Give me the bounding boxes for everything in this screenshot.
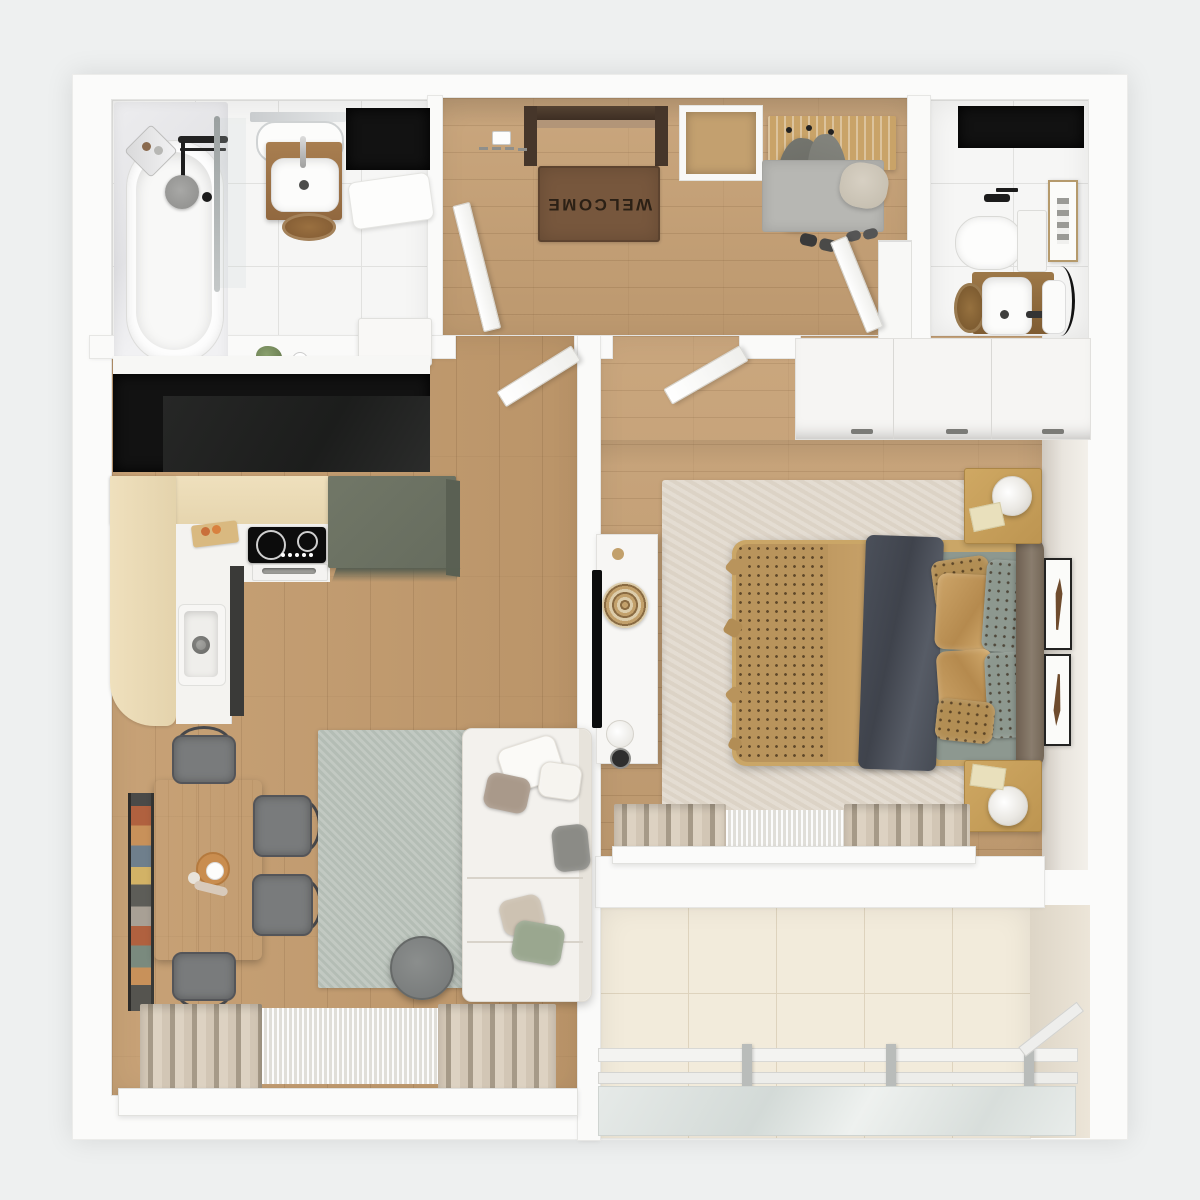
balcony-glass (598, 1086, 1076, 1136)
green-cabinet-bottom-shade (332, 568, 461, 582)
console-vase (606, 720, 634, 748)
cooktop-controls (281, 553, 285, 557)
coat-hooks (786, 127, 792, 133)
pillow-tan-dotted-bottom (934, 697, 996, 745)
cabinet-dark-strip (230, 566, 244, 716)
counter-left-bar (110, 476, 176, 726)
bedroom-shadow-overlay (598, 440, 1042, 466)
feather-icon (1052, 578, 1064, 630)
tub-drain (202, 192, 212, 202)
green-cabinet (328, 476, 456, 568)
chair-seat (252, 874, 313, 936)
wardrobe-handle-1 (851, 429, 873, 434)
oven-handle (262, 568, 316, 574)
console-knob (612, 548, 624, 560)
welcome-mat-text: WELCOME (538, 166, 660, 242)
chair-seat (253, 795, 312, 857)
console-candle (610, 748, 631, 769)
chair-seat (172, 952, 236, 1001)
wc-wall-art-sketch (1057, 198, 1069, 244)
wardrobe-handle-3 (1042, 429, 1064, 434)
glass-screen-pane (220, 118, 246, 288)
table-lamp-bottom (988, 786, 1028, 826)
wardrobe-handle-2 (946, 429, 968, 434)
bath-faucet-dot (299, 180, 309, 190)
wc-toilet-tank (1017, 210, 1047, 272)
tv (592, 570, 602, 728)
bedroom-curtain-right (844, 804, 970, 852)
bedroom-sheer-curtain (726, 810, 844, 848)
key-holder (492, 131, 511, 145)
living-sheer-curtain (262, 1008, 438, 1084)
shower-head (165, 175, 199, 209)
book-ledge (128, 793, 153, 1011)
dining-chair-bottom (172, 952, 236, 1010)
wc-wall-art (1048, 180, 1078, 262)
bread-slices (201, 527, 210, 536)
entry-door-lintel (524, 106, 668, 121)
entry-tall-cabinet (878, 240, 912, 340)
wc-black-niche (958, 106, 1084, 148)
cooktop-burner-small (297, 531, 318, 552)
living-window-sill (118, 1088, 578, 1116)
nightstand-bottom-papers (970, 764, 1007, 791)
entry-door-post-right (655, 106, 668, 166)
dining-chair-right-lower (252, 874, 322, 936)
sofa-pillow-white-2 (537, 760, 584, 801)
wardrobe-seam-2 (991, 339, 992, 439)
corner-sofa (462, 728, 592, 1002)
wc-basin (982, 277, 1032, 335)
wc-mirror-reflection (1042, 280, 1066, 334)
coffee-table (390, 936, 454, 1000)
decor-tray (602, 582, 648, 628)
headboard (1016, 538, 1044, 768)
kitchen-dark-counter (163, 396, 430, 472)
wc-wall-valve (984, 194, 1010, 202)
table-plate (206, 862, 224, 880)
bathroom-black-niche (346, 108, 430, 170)
chair-seat (172, 735, 236, 784)
balcony-rail-2 (598, 1072, 1078, 1084)
floor-plan-canvas: WELCOME (0, 0, 1200, 1200)
key-hooks (479, 147, 488, 150)
feather-print-bottom (1044, 654, 1071, 746)
wc-faucet-dot (1000, 310, 1009, 319)
living-curtain-right (438, 1004, 556, 1092)
sofa-pillow-gray (551, 823, 592, 873)
bedroom-curtain-left (614, 804, 726, 852)
wall-east-of-bedroom-door (740, 336, 800, 358)
entry-threshold (537, 120, 655, 128)
entry-wall-niche (680, 106, 762, 180)
bedspread-dotted (736, 544, 828, 762)
sofa-seam-1 (467, 877, 583, 879)
dining-chair-right-upper (253, 795, 321, 857)
balcony-rail-1 (598, 1048, 1078, 1062)
feather-icon (1052, 674, 1064, 726)
shower-shelf-bottles (142, 142, 151, 151)
dining-chair-top (172, 726, 236, 784)
wardrobe (795, 338, 1091, 440)
welcome-mat: WELCOME (538, 166, 660, 242)
sofa-pillow-sage (510, 919, 566, 967)
bedroom-window-sill (612, 846, 976, 864)
living-curtain-left (140, 1004, 262, 1092)
kitchen-faucet (192, 636, 210, 654)
green-cabinet-side (446, 479, 460, 577)
feather-print-top (1044, 558, 1072, 650)
wall-bedroom-balcony (596, 857, 1044, 907)
wardrobe-seam-1 (893, 339, 894, 439)
entry-door-post-left (524, 106, 537, 166)
wicker-stool (282, 213, 336, 241)
wc-toilet-bowl (955, 216, 1023, 270)
kitchen-ledge (113, 356, 430, 374)
bath-faucet (300, 136, 306, 168)
